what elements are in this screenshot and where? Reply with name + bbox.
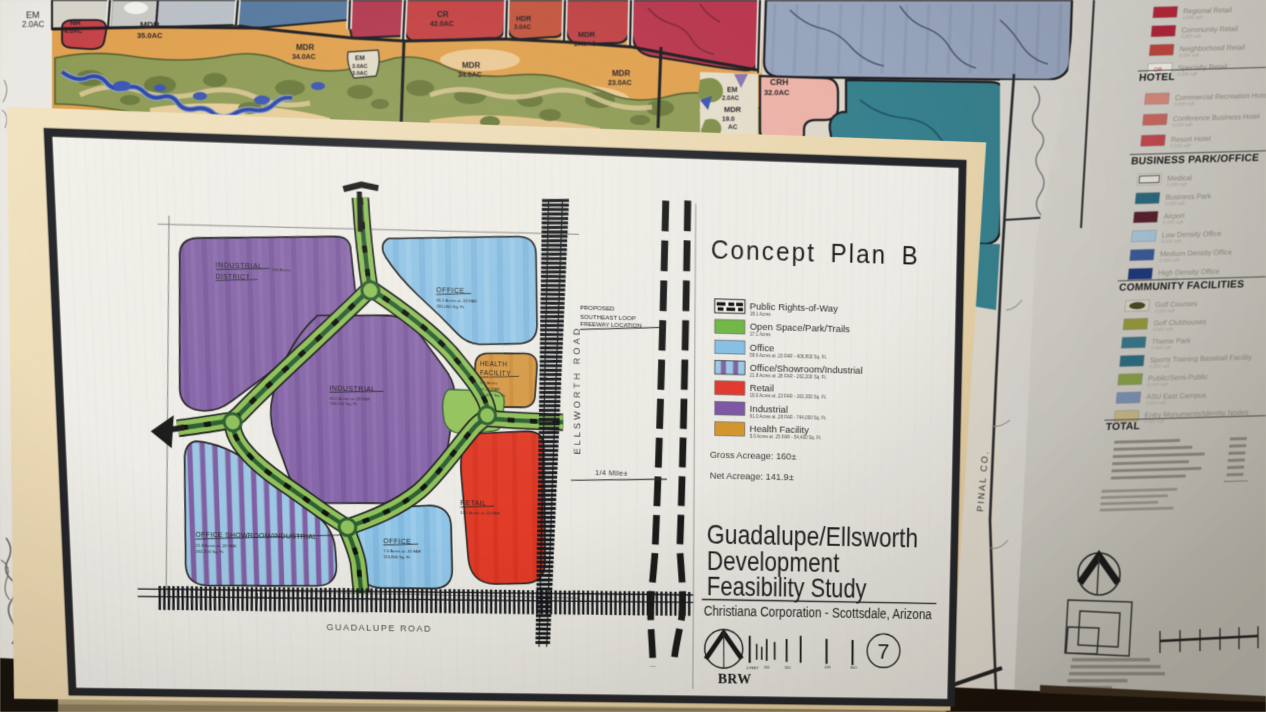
svg-text:EM: EM xyxy=(727,87,738,94)
svg-text:0,000 sqft: 0,000 sqft xyxy=(1166,182,1187,188)
svg-text:61.0 Acres at .28 FAR: 61.0 Acres at .28 FAR xyxy=(329,395,371,401)
svg-text:0,000 sqft: 0,000 sqft xyxy=(1147,382,1168,388)
svg-text:MDR: MDR xyxy=(296,43,314,52)
svg-text:7.0 Acres at .33 FAR: 7.0 Acres at .33 FAR xyxy=(383,548,422,553)
svg-text:MDR: MDR xyxy=(462,61,480,70)
svg-text:2.0AC: 2.0AC xyxy=(22,20,44,29)
svg-text:5.0 Acres: 5.0 Acres xyxy=(480,381,498,386)
svg-text:744,000 Sq. Ft.: 744,000 Sq. Ft. xyxy=(329,401,358,406)
svg-text:32.0AC: 32.0AC xyxy=(764,88,790,97)
svg-text:54,450 Sq. Ft.: 54,450 Sq. Ft. xyxy=(480,392,506,397)
svg-text:HDR: HDR xyxy=(516,16,531,23)
svg-text:Retail: Retail xyxy=(750,384,774,395)
svg-text:34.0AC: 34.0AC xyxy=(292,54,316,61)
svg-text:1/4 Mile±: 1/4 Mile± xyxy=(595,469,628,478)
svg-text:CRH: CRH xyxy=(770,77,788,87)
svg-text:HEALTH: HEALTH xyxy=(480,362,507,369)
svg-text:21.8 Acres at .28 FAR: 21.8 Acres at .28 FAR xyxy=(196,543,238,548)
svg-text:Office: Office xyxy=(750,343,775,354)
svg-text:150 Acres: 150 Acres xyxy=(271,268,291,273)
svg-text:CR: CR xyxy=(437,10,449,19)
svg-text:0,000 sqft: 0,000 sqft xyxy=(1172,122,1193,128)
svg-text:PROPOSED: PROPOSED xyxy=(580,305,615,313)
svg-text:EM: EM xyxy=(26,10,40,20)
svg-text:115,800 Sq. Ft.: 115,800 Sq. Ft. xyxy=(383,554,411,559)
svg-text:ELLSWORTH ROAD: ELLSWORTH ROAD xyxy=(572,325,583,454)
svg-text:0,000 sqft: 0,000 sqft xyxy=(1161,238,1182,244)
svg-text:NR: NR xyxy=(70,18,81,27)
svg-text:3.0AC: 3.0AC xyxy=(352,71,368,77)
svg-text:MDR: MDR xyxy=(612,69,630,78)
svg-text:0,000 sqft: 0,000 sqft xyxy=(1182,15,1203,21)
svg-text:Net Acreage: 141.9±: Net Acreage: 141.9± xyxy=(710,471,794,483)
svg-text:0,000 sqft: 0,000 sqft xyxy=(1170,143,1191,149)
svg-text:200: 200 xyxy=(785,665,792,670)
svg-text:17.1 Acres: 17.1 Acres xyxy=(750,332,772,338)
svg-text:0,000 sqft: 0,000 sqft xyxy=(1181,33,1202,39)
svg-text:TOTAL: TOTAL xyxy=(1105,421,1140,433)
svg-text:0,000 sqft: 0,000 sqft xyxy=(1177,71,1198,77)
svg-text:800: 800 xyxy=(851,665,858,670)
svg-text:GUADALUPE ROAD: GUADALUPE ROAD xyxy=(326,623,432,635)
svg-text:0 FEET: 0 FEET xyxy=(747,665,760,670)
svg-text:Industrial: Industrial xyxy=(750,404,788,415)
svg-text:BRW: BRW xyxy=(718,671,752,687)
svg-text:23.0AC: 23.0AC xyxy=(608,80,632,87)
svg-text:100: 100 xyxy=(764,665,771,670)
svg-text:0,000 sqft: 0,000 sqft xyxy=(1159,257,1180,263)
svg-text:3.0AC: 3.0AC xyxy=(352,64,368,70)
svg-text:35.0AC: 35.0AC xyxy=(137,31,163,40)
svg-text:0,000 sqft: 0,000 sqft xyxy=(1174,101,1195,107)
svg-text:0,000 sqft: 0,000 sqft xyxy=(1151,345,1172,351)
svg-text:0,000 sqft: 0,000 sqft xyxy=(1153,326,1174,332)
svg-text:3.0AC: 3.0AC xyxy=(514,25,532,31)
svg-text:291,060 Sq. Ft.: 291,060 Sq. Ft. xyxy=(436,304,465,310)
svg-text:34.0AC: 34.0AC xyxy=(458,72,482,79)
svg-text:at .25 FAR: at .25 FAR xyxy=(480,387,500,392)
svg-text:262,200 Sq. Ft.: 262,200 Sq. Ft. xyxy=(196,549,225,554)
svg-text:0,000 sqft: 0,000 sqft xyxy=(1149,363,1170,369)
svg-text:10.0 Acres at .23 FAR: 10.0 Acres at .23 FAR xyxy=(460,510,501,515)
svg-text:EM: EM xyxy=(355,55,365,62)
svg-text:27.0AC: 27.0AC xyxy=(574,41,596,48)
svg-text:7: 7 xyxy=(877,640,889,664)
svg-text:4.0AC: 4.0AC xyxy=(64,28,83,35)
svg-text:400: 400 xyxy=(825,665,832,670)
svg-text:Gross Acreage: 160±: Gross Acreage: 160± xyxy=(710,451,797,463)
svg-text:0,000 sqft: 0,000 sqft xyxy=(1179,52,1200,58)
svg-text:0,000 sqft: 0,000 sqft xyxy=(1165,201,1186,207)
svg-text:42.0AC: 42.0AC xyxy=(430,21,454,28)
svg-text:0,000 sqft: 0,000 sqft xyxy=(1163,219,1184,225)
svg-text:0,000 sqft: 0,000 sqft xyxy=(1154,308,1175,314)
svg-text:MDR: MDR xyxy=(140,20,159,30)
svg-text:MDR: MDR xyxy=(578,30,596,39)
svg-text:2.0AC: 2.0AC xyxy=(722,96,740,102)
svg-text:MDR: MDR xyxy=(724,105,742,114)
svg-text:HOTEL: HOTEL xyxy=(1139,72,1176,84)
svg-text:0,000 sqft: 0,000 sqft xyxy=(1146,400,1167,406)
svg-text:18.1 Acres: 18.1 Acres xyxy=(750,312,772,318)
